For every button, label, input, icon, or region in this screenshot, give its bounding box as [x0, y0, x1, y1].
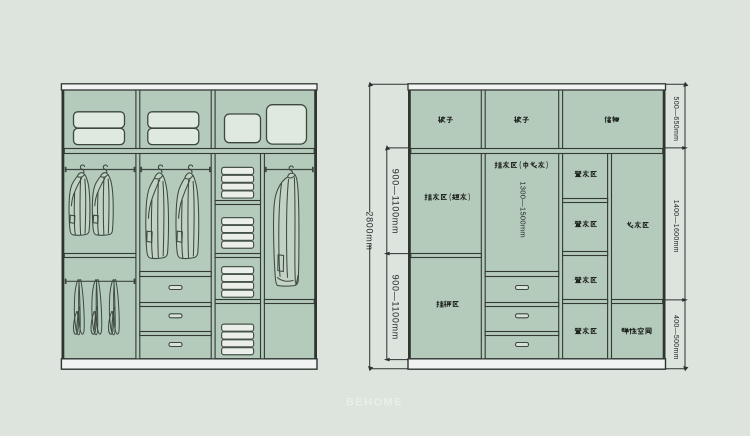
- svg-text:900—1100mm: 900—1100mm: [390, 275, 400, 340]
- svg-text:900—1100mm: 900—1100mm: [390, 169, 400, 234]
- svg-text:1300—1500mm: 1300—1500mm: [518, 181, 527, 238]
- svg-text:1400—1600mm: 1400—1600mm: [672, 200, 679, 253]
- svg-text:2800mm: 2800mm: [364, 211, 374, 250]
- svg-text:500—650mm: 500—650mm: [672, 97, 679, 142]
- svg-text:BEHOME: BEHOME: [346, 397, 403, 409]
- svg-text:400—500mm: 400—500mm: [672, 315, 679, 360]
